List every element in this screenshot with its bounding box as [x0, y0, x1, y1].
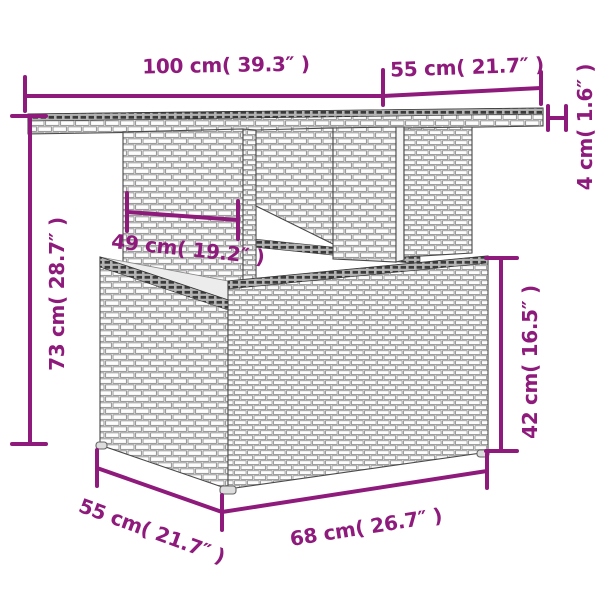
label-table-height: 73 cm( 28.7″ )	[45, 217, 69, 371]
dimension-diagram: 100 cm( 39.3″ ) 55 cm( 21.7″ ) 4 cm( 1.6…	[0, 0, 600, 600]
label-tabletop-width: 100 cm( 39.3″ )	[142, 52, 310, 79]
table-line-art	[28, 108, 543, 494]
pedestal-front-left-side	[243, 129, 256, 303]
pedestal-front-right-side	[396, 127, 404, 262]
dim-line-table-height	[12, 116, 46, 444]
pedestal-back-right	[404, 127, 472, 257]
label-tabletop-thickness: 4 cm( 1.6″ )	[573, 64, 597, 191]
base-right-face	[228, 256, 488, 489]
base-box	[96, 256, 489, 494]
base-foot-front	[220, 486, 236, 494]
dim-line-tabletop-thickness	[548, 106, 566, 130]
dim-line-base-height	[486, 258, 517, 451]
pedestal-front-right	[333, 127, 396, 262]
label-base-height: 42 cm( 16.5″ )	[518, 285, 542, 439]
pedestal-back-left	[256, 128, 333, 244]
base-foot-left	[96, 442, 107, 449]
